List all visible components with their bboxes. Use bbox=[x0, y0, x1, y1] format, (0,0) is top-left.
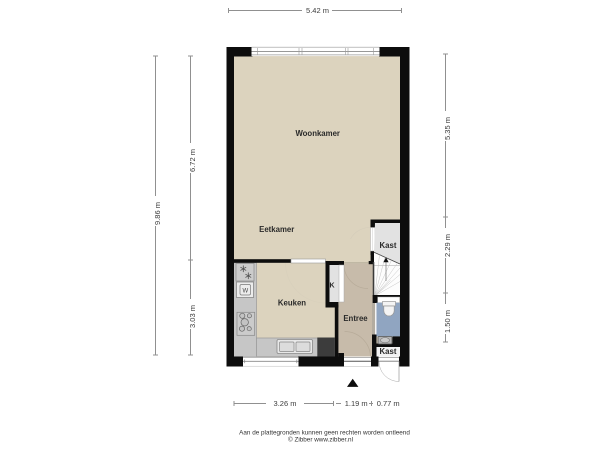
svg-text:W: W bbox=[242, 289, 248, 295]
svg-text:Aan de plattegronden kunnen ge: Aan de plattegronden kunnen geen rechten… bbox=[239, 430, 410, 437]
svg-text:1.50 m: 1.50 m bbox=[443, 310, 452, 333]
svg-text:© Zibber www.zibber.nl: © Zibber www.zibber.nl bbox=[288, 436, 353, 444]
svg-text:5.35 m: 5.35 m bbox=[443, 117, 452, 140]
svg-text:9.86 m: 9.86 m bbox=[153, 202, 162, 225]
svg-text:2.29 m: 2.29 m bbox=[443, 234, 452, 257]
svg-text:K: K bbox=[329, 283, 334, 290]
svg-text:Keuken: Keuken bbox=[278, 298, 306, 307]
svg-text:5.42 m: 5.42 m bbox=[306, 6, 329, 15]
svg-text:0.77 m: 0.77 m bbox=[377, 399, 400, 408]
svg-text:Entree: Entree bbox=[343, 314, 368, 323]
svg-text:1.19 m: 1.19 m bbox=[345, 399, 368, 408]
svg-text:3.26 m: 3.26 m bbox=[274, 399, 297, 408]
svg-text:6.72 m: 6.72 m bbox=[188, 149, 197, 172]
svg-text:Kast: Kast bbox=[380, 241, 397, 250]
svg-text:Kast: Kast bbox=[380, 347, 397, 356]
svg-text:3.03 m: 3.03 m bbox=[188, 305, 197, 328]
svg-text:Woonkamer: Woonkamer bbox=[295, 129, 339, 138]
svg-text:Eetkamer: Eetkamer bbox=[259, 225, 294, 234]
